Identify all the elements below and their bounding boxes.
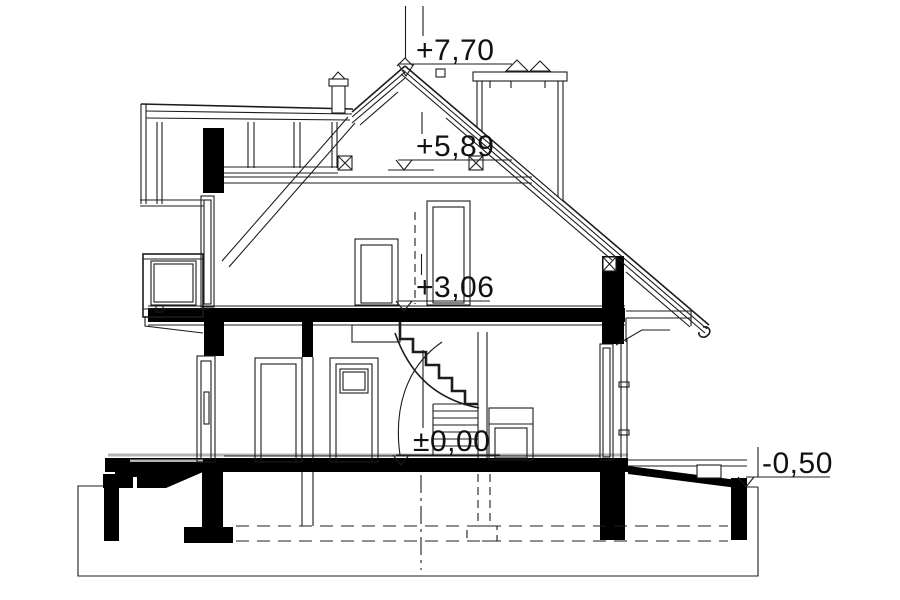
level-label: +7,70 <box>416 34 494 67</box>
entrance-foundation-pier <box>104 488 119 541</box>
terrace-foundation-pier <box>731 478 747 540</box>
level-label: -0,50 <box>762 447 833 480</box>
foundation <box>78 455 758 576</box>
right-foundation-wall <box>600 472 625 540</box>
level-marker-floor1: +3,06 <box>396 254 494 311</box>
entrance-door-rail <box>204 392 209 424</box>
left-footing-pad <box>184 527 233 543</box>
roof-left-inner <box>360 92 398 125</box>
terrace-door-glazing <box>603 348 610 457</box>
roof-left-slope <box>352 78 405 123</box>
vent-pipe-collar <box>329 79 348 86</box>
dormer-roof-top <box>141 104 353 109</box>
door-window <box>340 369 368 393</box>
entrance-door-frame <box>197 356 215 462</box>
entrance-step-lower <box>103 474 133 488</box>
terrace-door-frame <box>600 344 613 460</box>
overhang-underside <box>626 272 690 327</box>
vent-pipe <box>329 72 348 113</box>
level-marker-ground: ±0,00 <box>393 350 500 465</box>
dormer <box>141 72 353 204</box>
stair-landing <box>352 325 400 342</box>
level-label: +5,89 <box>416 130 494 163</box>
vent-cap-icon <box>332 72 345 79</box>
eave-corbel <box>616 330 670 345</box>
house-cross-section: +7,70 +5,89 +3,06 ±0,00 -0,50 <box>0 0 900 600</box>
level-marker-terrain: -0,50 <box>738 447 833 487</box>
first-floor-slab <box>148 308 625 322</box>
eaves <box>616 311 710 345</box>
left-wall-lintel <box>204 322 224 356</box>
roof-left-slope <box>352 66 405 112</box>
interior-door-leaf <box>261 364 296 462</box>
dormer-front-wall-cut <box>203 128 224 193</box>
interior-door <box>255 358 302 462</box>
vent-pipe-body <box>332 85 345 113</box>
bay-panel <box>151 261 196 305</box>
purlin-beam <box>603 257 616 271</box>
stair-footing-pad-dashed <box>467 526 497 541</box>
chimney-cap <box>473 72 567 81</box>
terrace-edge-step <box>697 465 721 478</box>
level-label: +3,06 <box>416 271 494 304</box>
dormer-roof-layer <box>146 118 350 120</box>
dormer-roof-layer <box>146 111 352 114</box>
stair-handrail-curve <box>395 333 479 408</box>
ground-floor <box>148 306 629 462</box>
door-window-inner <box>343 372 365 390</box>
interior-door-2-leaf <box>336 364 372 462</box>
level-triangle-icon <box>396 160 412 170</box>
excavation-outline <box>78 486 758 576</box>
chimney-cowl-icon <box>530 61 550 71</box>
attic-frame-short-inner <box>361 245 392 303</box>
terrace-slab <box>628 466 745 489</box>
left-foundation-wall <box>202 462 223 527</box>
cabinet <box>489 408 533 460</box>
ridge-batten <box>436 69 445 77</box>
level-marker-ridge: +7,70 <box>398 6 512 76</box>
upper-window-glazing <box>204 200 211 304</box>
roof-left-slope <box>352 72 405 117</box>
bay-panel-inner <box>154 264 193 302</box>
interior-wall-lintel <box>302 322 313 357</box>
dormer-valley-line <box>222 117 348 261</box>
purlin-beam <box>338 156 352 170</box>
interior-door-2 <box>330 358 378 462</box>
ridge-cap <box>397 58 413 66</box>
section-drawing: +7,70 +5,89 +3,06 ±0,00 -0,50 <box>0 0 900 600</box>
level-label: ±0,00 <box>413 425 490 458</box>
chimney-cowl-icon <box>506 60 528 71</box>
